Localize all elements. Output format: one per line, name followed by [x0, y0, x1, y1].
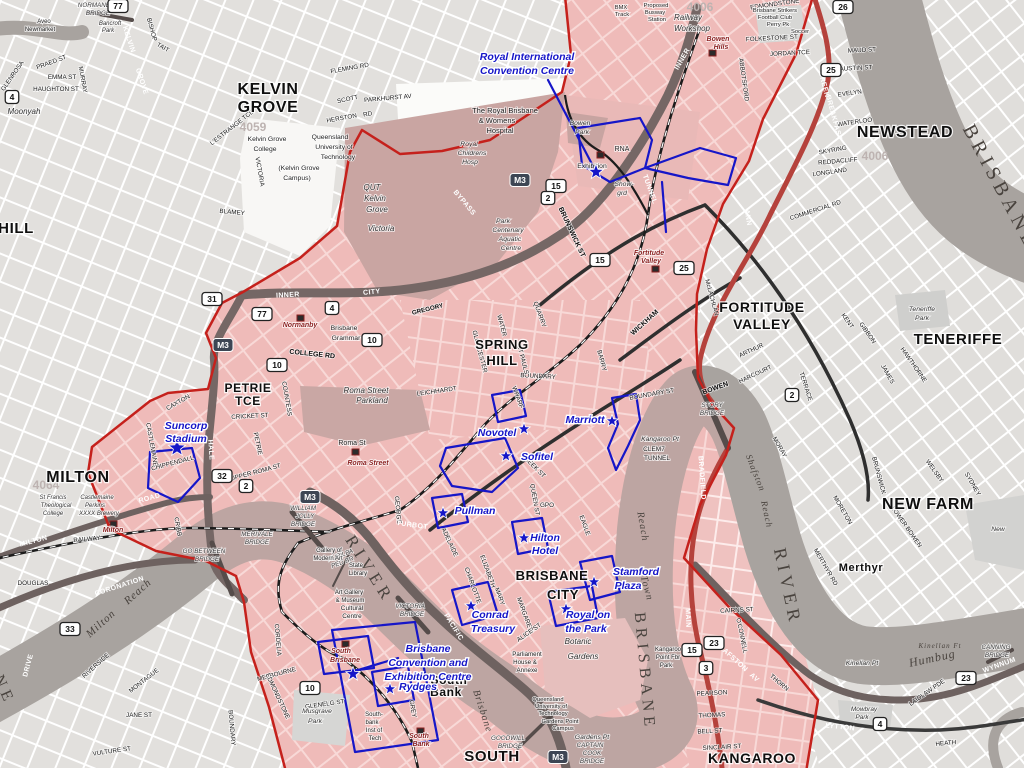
hotel-label: Stadium — [165, 433, 206, 445]
landmark-label: Campus) — [283, 175, 311, 182]
landmark-label: The Royal Brisbane — [472, 106, 538, 115]
hotel-label: Pullman — [455, 505, 496, 517]
landmark-label: University of — [315, 144, 353, 151]
river-label: Kinellan Ft — [917, 642, 961, 650]
major-road-label: MAIN — [684, 608, 692, 628]
street-label: HAUGHTON ST — [33, 86, 79, 93]
route-marker-label: 10 — [272, 360, 282, 370]
hotel-label: Sofitel — [521, 451, 554, 463]
hotel-label: Conrad — [472, 609, 509, 621]
route-marker-label: M3 — [552, 752, 564, 762]
station-label: South — [409, 733, 429, 740]
hotel-label: the Park — [565, 623, 608, 635]
landmark-label: Hospital — [486, 126, 513, 135]
brisbane-street-map[interactable]: BRISBANEBRISBANEBRISBANERIVERRIVERMilton… — [0, 0, 1024, 768]
landmark-label: South- — [365, 712, 383, 718]
landmark-label: Bowen — [570, 120, 591, 127]
suburb-label: FORTITUDE — [719, 299, 805, 315]
suburb-label: CITY — [547, 587, 579, 602]
route-marker-label: 15 — [551, 181, 561, 191]
landmark-label: Kangaroo — [655, 647, 682, 653]
bridge-label: BRIDGE — [580, 758, 605, 765]
suburb-label: NEW FARM — [882, 496, 974, 513]
map-canvas: BRISBANEBRISBANEBRISBANERIVERRIVERMilton… — [0, 0, 1024, 768]
route-marker-label: M3 — [217, 340, 229, 350]
landmark-label: Queensland — [532, 697, 563, 703]
bridge-label: BRIDGE — [985, 652, 1010, 659]
route-marker-label: 23 — [961, 673, 971, 683]
landmark-label: Busway — [645, 10, 665, 16]
bridge-label: MERIVALE — [241, 531, 273, 538]
station-label: Bank — [412, 741, 430, 748]
suburb-label: KELVIN — [237, 81, 298, 98]
bridge-label: BRIDGE — [291, 521, 316, 528]
landmark-label: Football Club — [758, 15, 792, 21]
route-marker-label: 31 — [207, 294, 217, 304]
bridge-label: BRIDGE — [400, 611, 425, 618]
route-marker-label: 23 — [709, 638, 719, 648]
landmark-label: Perry Pk — [767, 22, 789, 28]
hotel-label: Plaza — [615, 580, 642, 592]
postcode-label: 4006 — [687, 0, 714, 14]
landmark-label: State — [349, 563, 364, 569]
bridge-label: GOODWILL — [491, 735, 525, 742]
landmark-label: Show- — [614, 181, 634, 188]
landmark-label: Hosp — [462, 159, 478, 166]
landmark-label: Botanic — [565, 637, 592, 646]
route-marker-label: 4 — [10, 92, 15, 102]
route-marker-label: 2 — [546, 193, 551, 203]
landmark-label: Grammar — [332, 335, 361, 342]
suburb-label: BRISBANE — [516, 568, 589, 583]
landmark-label: Proposed — [644, 3, 669, 9]
landmark-label: Parliament — [512, 651, 542, 658]
landmark-label: Brisbane Strikers — [753, 8, 797, 14]
bridge-label: COOK — [583, 750, 602, 757]
landmark-label: CLEM7 — [643, 446, 665, 453]
station-label: Bowen — [707, 36, 730, 43]
hotel-label: Brisbane — [406, 643, 451, 655]
landmark-label: University of — [535, 704, 567, 710]
route-marker-label: 77 — [113, 1, 123, 11]
landmark-label: St Francis — [39, 495, 66, 501]
bridge-label: JOLLY — [295, 513, 315, 520]
route-marker-label: 4 — [878, 719, 883, 729]
route-marker-label: 25 — [679, 263, 689, 273]
station-label: Milton — [103, 527, 124, 534]
route-marker-label: 15 — [687, 645, 697, 655]
bridge-label: BRIDGE — [245, 539, 270, 546]
landmark-label: College — [43, 511, 64, 517]
route-marker-label: 2 — [790, 390, 795, 400]
suburb-label: Moonyah — [8, 107, 41, 116]
route-marker-label: M3 — [514, 175, 526, 185]
route-marker-label: M3 — [304, 492, 316, 502]
landmark-label: TUNNEL — [644, 455, 670, 462]
landmark-label: Gardens Pt — [575, 734, 610, 741]
landmark-label: Childrens — [458, 150, 487, 157]
hotel-label: Royal International — [480, 51, 576, 63]
landmark-label: Inst of — [366, 728, 383, 734]
hotel-label: Convention and — [388, 657, 468, 669]
hotel-label: Stamford — [613, 566, 660, 578]
landmark-label: Railway — [674, 13, 703, 22]
bridge-label: BRIDGE — [700, 410, 725, 417]
landmark-label: College — [253, 146, 276, 153]
street-label: GPO — [540, 502, 554, 509]
landmark-label: Aquatic — [498, 236, 522, 243]
hotel-label: Suncorp — [165, 420, 208, 432]
suburb-label: SPRING — [475, 337, 528, 352]
landmark-label: Art Gallery — [335, 590, 363, 596]
landmark-label: Victoria — [368, 224, 395, 233]
bridge-label: GO BETWEEN — [183, 548, 226, 555]
landmark-label: Parkland — [356, 396, 388, 405]
landmark-label: Gardens — [568, 652, 599, 661]
landmark-label: Annexe — [517, 667, 539, 674]
street-label: BELL ST — [697, 727, 722, 735]
suburb-label: VALLEY — [733, 316, 791, 332]
landmark-label: Library — [349, 571, 367, 577]
route-marker-label: 32 — [217, 471, 227, 481]
route-marker-label: 33 — [65, 624, 75, 634]
suburb-label: Merthyr — [839, 562, 884, 574]
suburb-label: TENERIFFE — [914, 331, 1003, 348]
landmark-label: bank — [365, 720, 379, 726]
landmark-label: Perkins — [85, 503, 105, 509]
landmark-label: Park — [855, 714, 869, 721]
landmark-label: Roma Street — [344, 386, 390, 395]
major-road-label: HALE — [206, 439, 214, 460]
major-road-label: INNER — [276, 291, 300, 299]
landmark-label: Bancroft — [99, 21, 122, 27]
landmark-label: Kangaroo Pt — [641, 436, 680, 443]
landmark-label: Technology — [321, 154, 356, 161]
station-label: Valley — [641, 258, 662, 265]
station-label: Hills — [714, 44, 729, 51]
route-marker-label: 10 — [367, 335, 377, 345]
landmark-label: BMX — [615, 5, 628, 11]
street-label: EMMA ST — [48, 74, 76, 81]
bridge-label: CAPTAIN — [577, 742, 604, 749]
landmark-label: Castlemaine — [80, 495, 114, 501]
hotel-label: Treasury — [471, 623, 516, 635]
suburb-label: PETRIE — [225, 381, 272, 395]
route-marker-label: 25 — [826, 65, 836, 75]
station-label: Fortitude — [634, 250, 664, 257]
suburb-label: GROVE — [238, 99, 299, 116]
landmark-label: Grove — [366, 205, 388, 214]
landmark-label: Teneriffe — [909, 306, 935, 313]
landmark-label: (Kelvin Grove — [278, 165, 319, 172]
suburb-label: HILL — [0, 220, 34, 237]
bridge-label: VICTORIA — [395, 603, 425, 610]
landmark-label: Station — [648, 17, 666, 23]
hotel-label: Hilton — [530, 532, 560, 544]
hotel-label: Marriott — [565, 414, 605, 426]
landmark-label: New — [991, 526, 1006, 533]
landmark-label: Roma St — [338, 440, 365, 447]
bridge-label: BRIDGE — [86, 10, 111, 17]
bridge-label: BRIDGE — [195, 556, 220, 563]
landmark-label: XXXX Brewery — [78, 511, 120, 517]
suburb-label: HILL — [486, 353, 517, 368]
landmark-label: Technology — [538, 711, 567, 717]
suburb-label: NEWSTEAD — [857, 124, 953, 141]
landmark-label: Royal — [460, 141, 478, 148]
landmark-label: Centre — [501, 245, 522, 252]
route-marker-label: 3 — [704, 663, 709, 673]
landmark-label: Queensland — [312, 134, 349, 141]
landmark-label: Point Fbr — [656, 655, 680, 661]
landmark-label: Modern Art — [313, 556, 343, 562]
landmark-label: & Womens — [479, 116, 516, 125]
landmark-label: Exhibition — [577, 163, 607, 170]
landmark-label: Park — [308, 718, 323, 725]
landmark-label: QUT — [364, 183, 382, 192]
route-marker-label: 77 — [257, 309, 267, 319]
hotel-label: Royal on — [566, 609, 610, 621]
hotel-label: Convention Centre — [480, 65, 574, 77]
suburb-label: MILTON — [46, 469, 109, 486]
landmark-label: Musgrave — [302, 708, 332, 715]
street-label: THOMAS — [698, 711, 725, 719]
landmark-label: Park — [496, 218, 511, 225]
street-label: MAUD ST — [848, 46, 877, 54]
landmark-label: Newmarket — [25, 27, 56, 33]
postcode-label: 4006 — [862, 149, 889, 163]
landmark-label: Cultural — [341, 605, 364, 612]
landmark-label: Park — [660, 663, 673, 669]
station-label: Brisbane — [330, 657, 360, 664]
bridge-label: STORY — [701, 402, 723, 409]
landmark-label: Track — [615, 12, 629, 18]
landmark-label: Centenary — [492, 227, 524, 234]
route-marker-label: 4 — [330, 303, 335, 313]
landmark-label: Tech — [369, 736, 382, 742]
hotel-label: Hotel — [532, 545, 559, 557]
hotel-label: Novotel — [478, 427, 518, 439]
landmark-label: Theological — [41, 503, 72, 509]
landmark-label: Kelvin — [364, 194, 386, 203]
landmark-label: Kelvin Grove — [248, 136, 287, 143]
landmark-label: Brisbane — [331, 325, 358, 332]
suburb-label: KANGAROO — [708, 750, 796, 766]
landmark-label: Park — [915, 315, 930, 322]
landmark-label: Aveo — [37, 19, 51, 25]
landmark-label: RNA — [615, 146, 630, 153]
landmark-label: Gardens Point — [541, 719, 578, 725]
suburb-label: TCE — [235, 394, 261, 408]
route-marker-label: 2 — [244, 481, 249, 491]
landmark-label: & Museum — [336, 598, 365, 604]
station-label: Normanby — [283, 322, 319, 329]
landmark-label: Campus — [552, 726, 574, 732]
landmark-label: Soccer — [791, 29, 809, 35]
station-label: Roma Street — [347, 460, 389, 467]
bridge-label: WILLIAM — [290, 505, 317, 512]
landmark-label: Park — [102, 28, 115, 34]
route-marker-label: 15 — [595, 255, 605, 265]
landmark-label: Centre — [342, 613, 362, 620]
suburb-label: SOUTH — [464, 748, 520, 765]
landmark-label: House & — [513, 659, 538, 666]
station-label: South — [331, 648, 351, 655]
landmark-label: Gallery of — [316, 548, 342, 554]
landmark-label: grd — [617, 190, 627, 197]
street-label: JANE ST — [126, 712, 152, 719]
hotel-label: Rydges — [399, 681, 437, 693]
route-marker-label: 26 — [838, 2, 848, 12]
landmark-label: Workshop — [674, 24, 711, 33]
route-marker-label: 10 — [305, 683, 315, 693]
landmark-label: Kinellan Pt — [846, 660, 880, 667]
landmark-label: Park — [575, 129, 590, 136]
street-label: DOUGLAS — [18, 580, 49, 587]
bridge-label: CANNING — [981, 644, 1010, 651]
landmark-label: Mowbray — [851, 706, 878, 713]
